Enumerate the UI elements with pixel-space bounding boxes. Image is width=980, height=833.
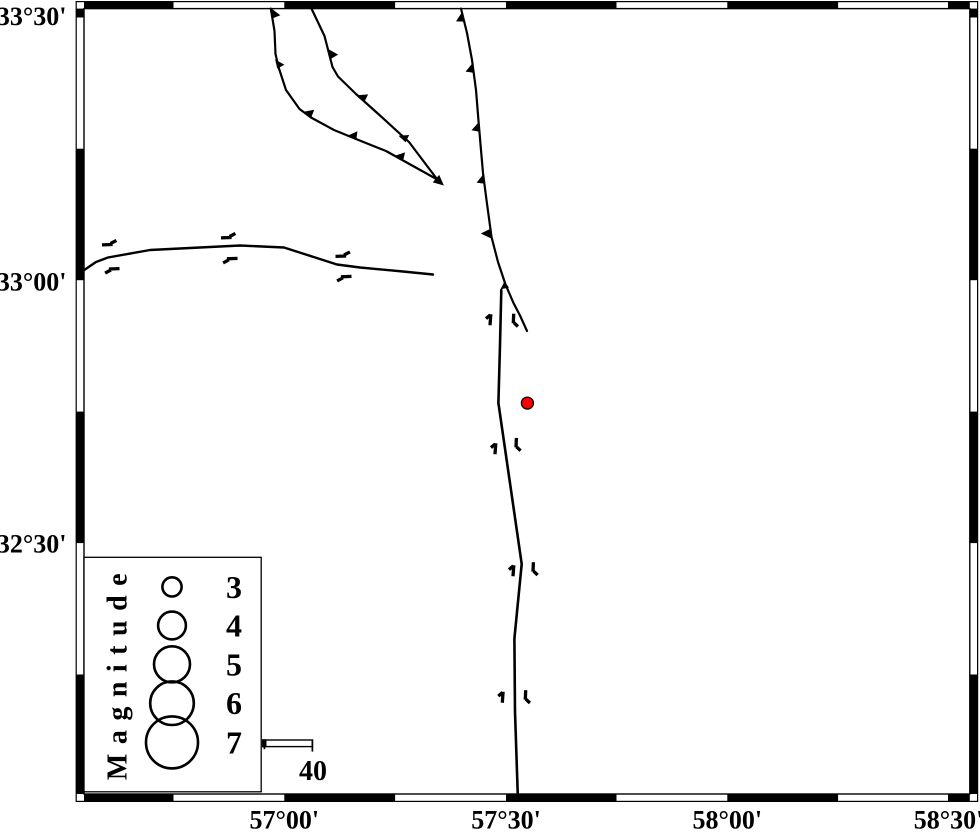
svg-text:Magnitude: Magnitude: [103, 564, 134, 780]
svg-text:7: 7: [226, 724, 242, 760]
svg-text:40: 40: [299, 756, 327, 787]
svg-text:5: 5: [226, 646, 242, 682]
svg-text:33°30': 33°30': [0, 2, 67, 31]
svg-text:58°30': 58°30': [914, 806, 980, 833]
svg-text:58°00': 58°00': [692, 806, 762, 833]
svg-text:6: 6: [226, 685, 242, 721]
svg-text:4: 4: [226, 608, 242, 644]
svg-text:3: 3: [226, 569, 242, 605]
svg-text:57°30': 57°30': [471, 806, 541, 833]
svg-text:32°30': 32°30': [0, 530, 67, 559]
svg-text:33°00': 33°00': [0, 268, 67, 297]
svg-text:57°00': 57°00': [249, 806, 319, 833]
